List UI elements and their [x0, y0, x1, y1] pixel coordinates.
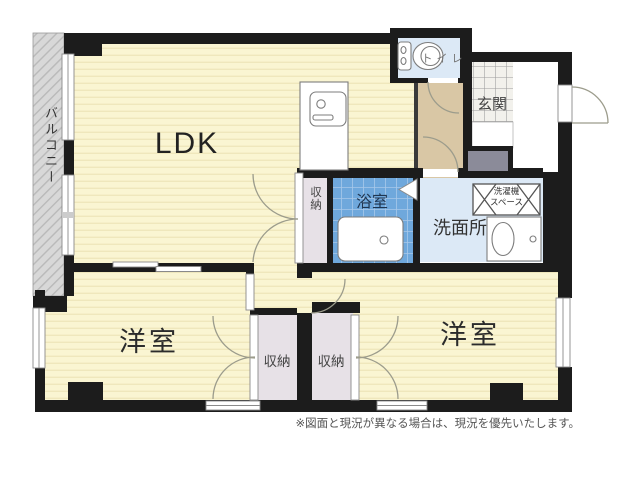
- wall-entrance-top: [467, 52, 572, 62]
- laundry-space-label: 洗濯機 スペース: [477, 186, 536, 207]
- laundry-space-line2: スペース: [477, 197, 536, 208]
- laundry-space-line1: 洗濯機: [477, 186, 536, 197]
- wall-ldk-left-mid: [64, 140, 74, 175]
- entrance-step: [472, 122, 513, 148]
- storage-hall-doorway: [295, 173, 303, 263]
- wall-bedroom-right-post: [297, 263, 312, 278]
- bedroom-right-label: 洋室: [420, 313, 520, 352]
- wall-hall-thin: [414, 83, 418, 178]
- wall-ldk-left-low: [64, 255, 74, 296]
- wall-top: [64, 33, 393, 44]
- toilet-doorway: [428, 78, 458, 83]
- wall-closet-left-top: [250, 308, 297, 315]
- entrance-door-arc: [572, 87, 608, 123]
- bathroom-label: 浴室: [332, 188, 412, 212]
- balcony-label: バルコニー: [41, 106, 60, 186]
- wall-notch-right: [490, 383, 523, 412]
- wall-notch-left: [68, 382, 103, 412]
- bedroom-left-doorway: [246, 274, 254, 310]
- washroom-doorway: [423, 169, 458, 177]
- bathtub: [338, 217, 403, 261]
- kitchen-sink-drain: [313, 115, 333, 120]
- wall-washroom-right: [543, 172, 572, 272]
- floorplan-drawing: [0, 0, 640, 480]
- wall-hall-post: [246, 263, 254, 274]
- entry-hall-floor: [414, 83, 463, 178]
- toilet-label: トイレ: [413, 50, 475, 66]
- entrance-door-opening: [558, 85, 572, 122]
- wall-toilet-top: [390, 28, 467, 38]
- sliding-door-panel-b: [156, 267, 201, 272]
- window-divider: [63, 212, 73, 218]
- closet-left-label: 収納: [255, 350, 299, 370]
- wall-bedroom-left-a: [35, 290, 45, 308]
- footer-disclaimer: ※図面と現況が異なる場合は、現況を優先いたします。: [280, 415, 580, 431]
- wall-right-upper: [558, 62, 572, 85]
- kitchen-sink: [310, 92, 346, 126]
- wall-closet-right-top: [312, 302, 360, 313]
- sliding-door-panel-a: [113, 262, 158, 267]
- wall-corner-tl: [64, 33, 102, 56]
- storage-hall-label: 収納: [307, 186, 323, 211]
- floorplan-image: { "floorplan": { "rooms": { "ldk": "LDK"…: [0, 0, 640, 480]
- wall-bath-bottom: [298, 263, 543, 272]
- inner-hall-floor: [250, 263, 298, 313]
- ldk-label: LDK: [127, 127, 247, 161]
- washroom-label: 洗面所: [410, 214, 510, 240]
- wall-toilet-bottom-a: [393, 78, 428, 83]
- closet-right-label: 収納: [309, 350, 353, 370]
- entrance-label: 玄関: [462, 93, 522, 114]
- bedroom-left-label: 洋室: [99, 320, 199, 359]
- shoe-cabinet: [468, 151, 508, 171]
